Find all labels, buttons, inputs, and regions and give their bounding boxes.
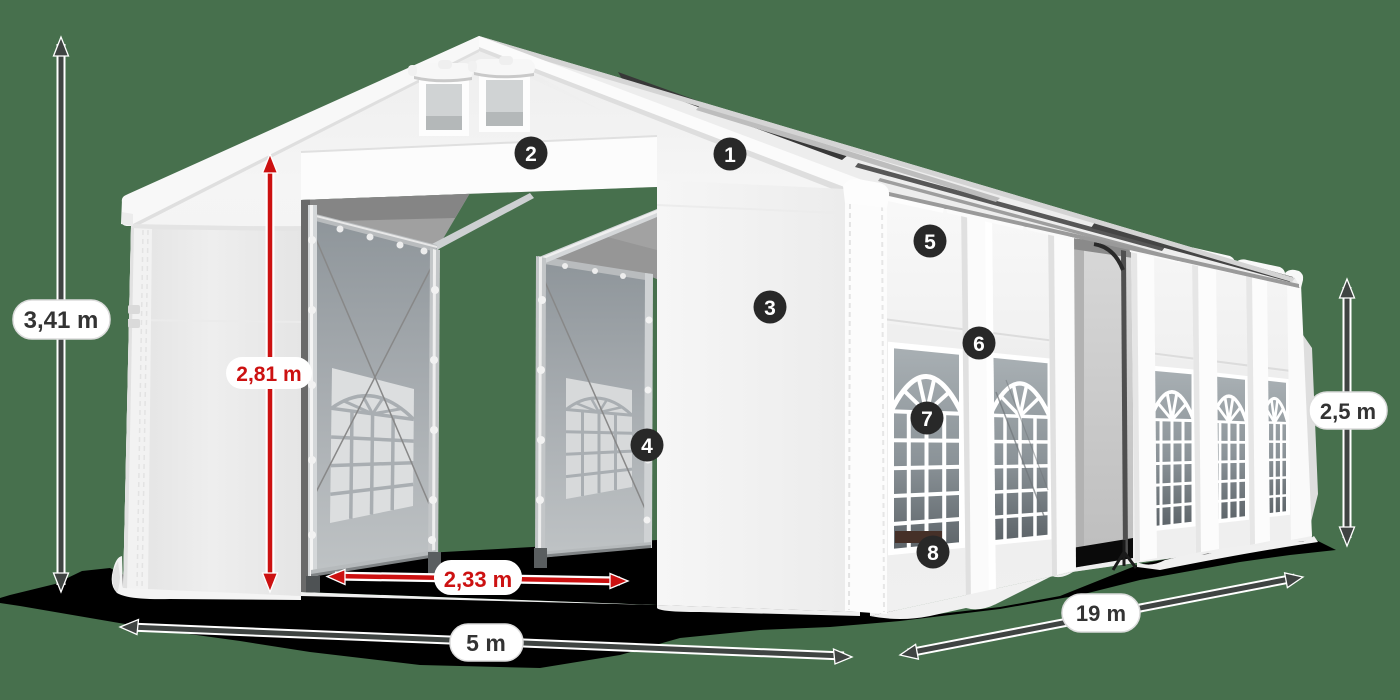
svg-text:2,81 m: 2,81 m [236,363,301,386]
svg-text:6: 6 [973,333,985,356]
svg-text:2,33 m: 2,33 m [444,567,513,592]
svg-text:2,5 m: 2,5 m [1320,399,1376,424]
svg-text:5: 5 [924,231,936,254]
svg-text:3,41 m: 3,41 m [24,307,99,334]
svg-text:4: 4 [641,435,653,458]
svg-text:7: 7 [921,408,933,431]
svg-text:19 m: 19 m [1076,601,1126,626]
svg-text:1: 1 [724,144,736,167]
svg-text:3: 3 [764,297,776,320]
svg-text:8: 8 [927,542,939,565]
svg-text:2: 2 [525,143,537,166]
svg-text:5 m: 5 m [466,630,506,656]
